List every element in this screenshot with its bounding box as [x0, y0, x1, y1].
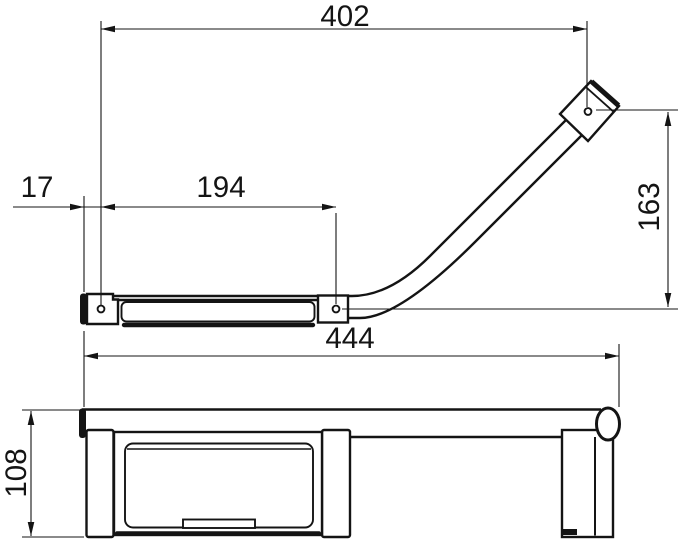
dim-108: 108	[0, 411, 34, 536]
dim-402: 402	[101, 0, 587, 33]
dim-163: 163	[633, 112, 671, 307]
dim-194-arrow-right	[322, 204, 336, 211]
shelf-body-side	[122, 302, 315, 322]
bar-end-circle	[597, 408, 620, 440]
tube-lower-edge	[320, 135, 582, 318]
dim-108-label: 108	[0, 448, 33, 497]
grab-bar-technical-drawing: 402 17 194 163 444	[0, 0, 680, 540]
post-middle	[322, 430, 350, 537]
shelf-side	[118, 300, 318, 325]
side-view	[80, 81, 619, 325]
post-right	[562, 430, 613, 537]
dim-163-arrow-bottom	[665, 293, 672, 307]
dim-402-arrow-left	[101, 26, 115, 33]
shelf-handle	[183, 520, 255, 529]
dim-163-label: 163	[633, 182, 666, 231]
dim-194-arrow-left	[101, 204, 115, 211]
dim-444-arrow-right	[605, 353, 619, 360]
upper-wall-plate	[560, 81, 619, 141]
dim-444-arrow-left	[84, 353, 98, 360]
post-left	[87, 430, 114, 537]
dim-444: 444	[84, 322, 619, 359]
dim-402-arrow-right	[573, 26, 587, 33]
dim-17-arrow	[70, 204, 84, 211]
dim-17-194: 17 194	[13, 171, 336, 210]
drawing-sheet: 402 17 194 163 444	[0, 0, 680, 540]
screw-hole-upper	[585, 108, 592, 115]
brand-logo-badge	[563, 529, 577, 535]
screw-hole-left	[98, 306, 105, 313]
dim-108-arrow-bottom	[28, 522, 35, 536]
shelf-door	[125, 444, 313, 528]
dim-17-label: 17	[21, 171, 54, 204]
left-end-cap-front	[79, 409, 86, 439]
shelf-front	[114, 432, 322, 535]
dim-108-arrow-top	[28, 411, 35, 425]
front-view	[79, 408, 620, 537]
dim-444-label: 444	[325, 322, 374, 355]
dim-194-label: 194	[196, 171, 245, 204]
screw-hole-middle	[333, 306, 340, 313]
dim-163-arrow-top	[665, 112, 672, 126]
dim-402-label: 402	[320, 0, 369, 33]
